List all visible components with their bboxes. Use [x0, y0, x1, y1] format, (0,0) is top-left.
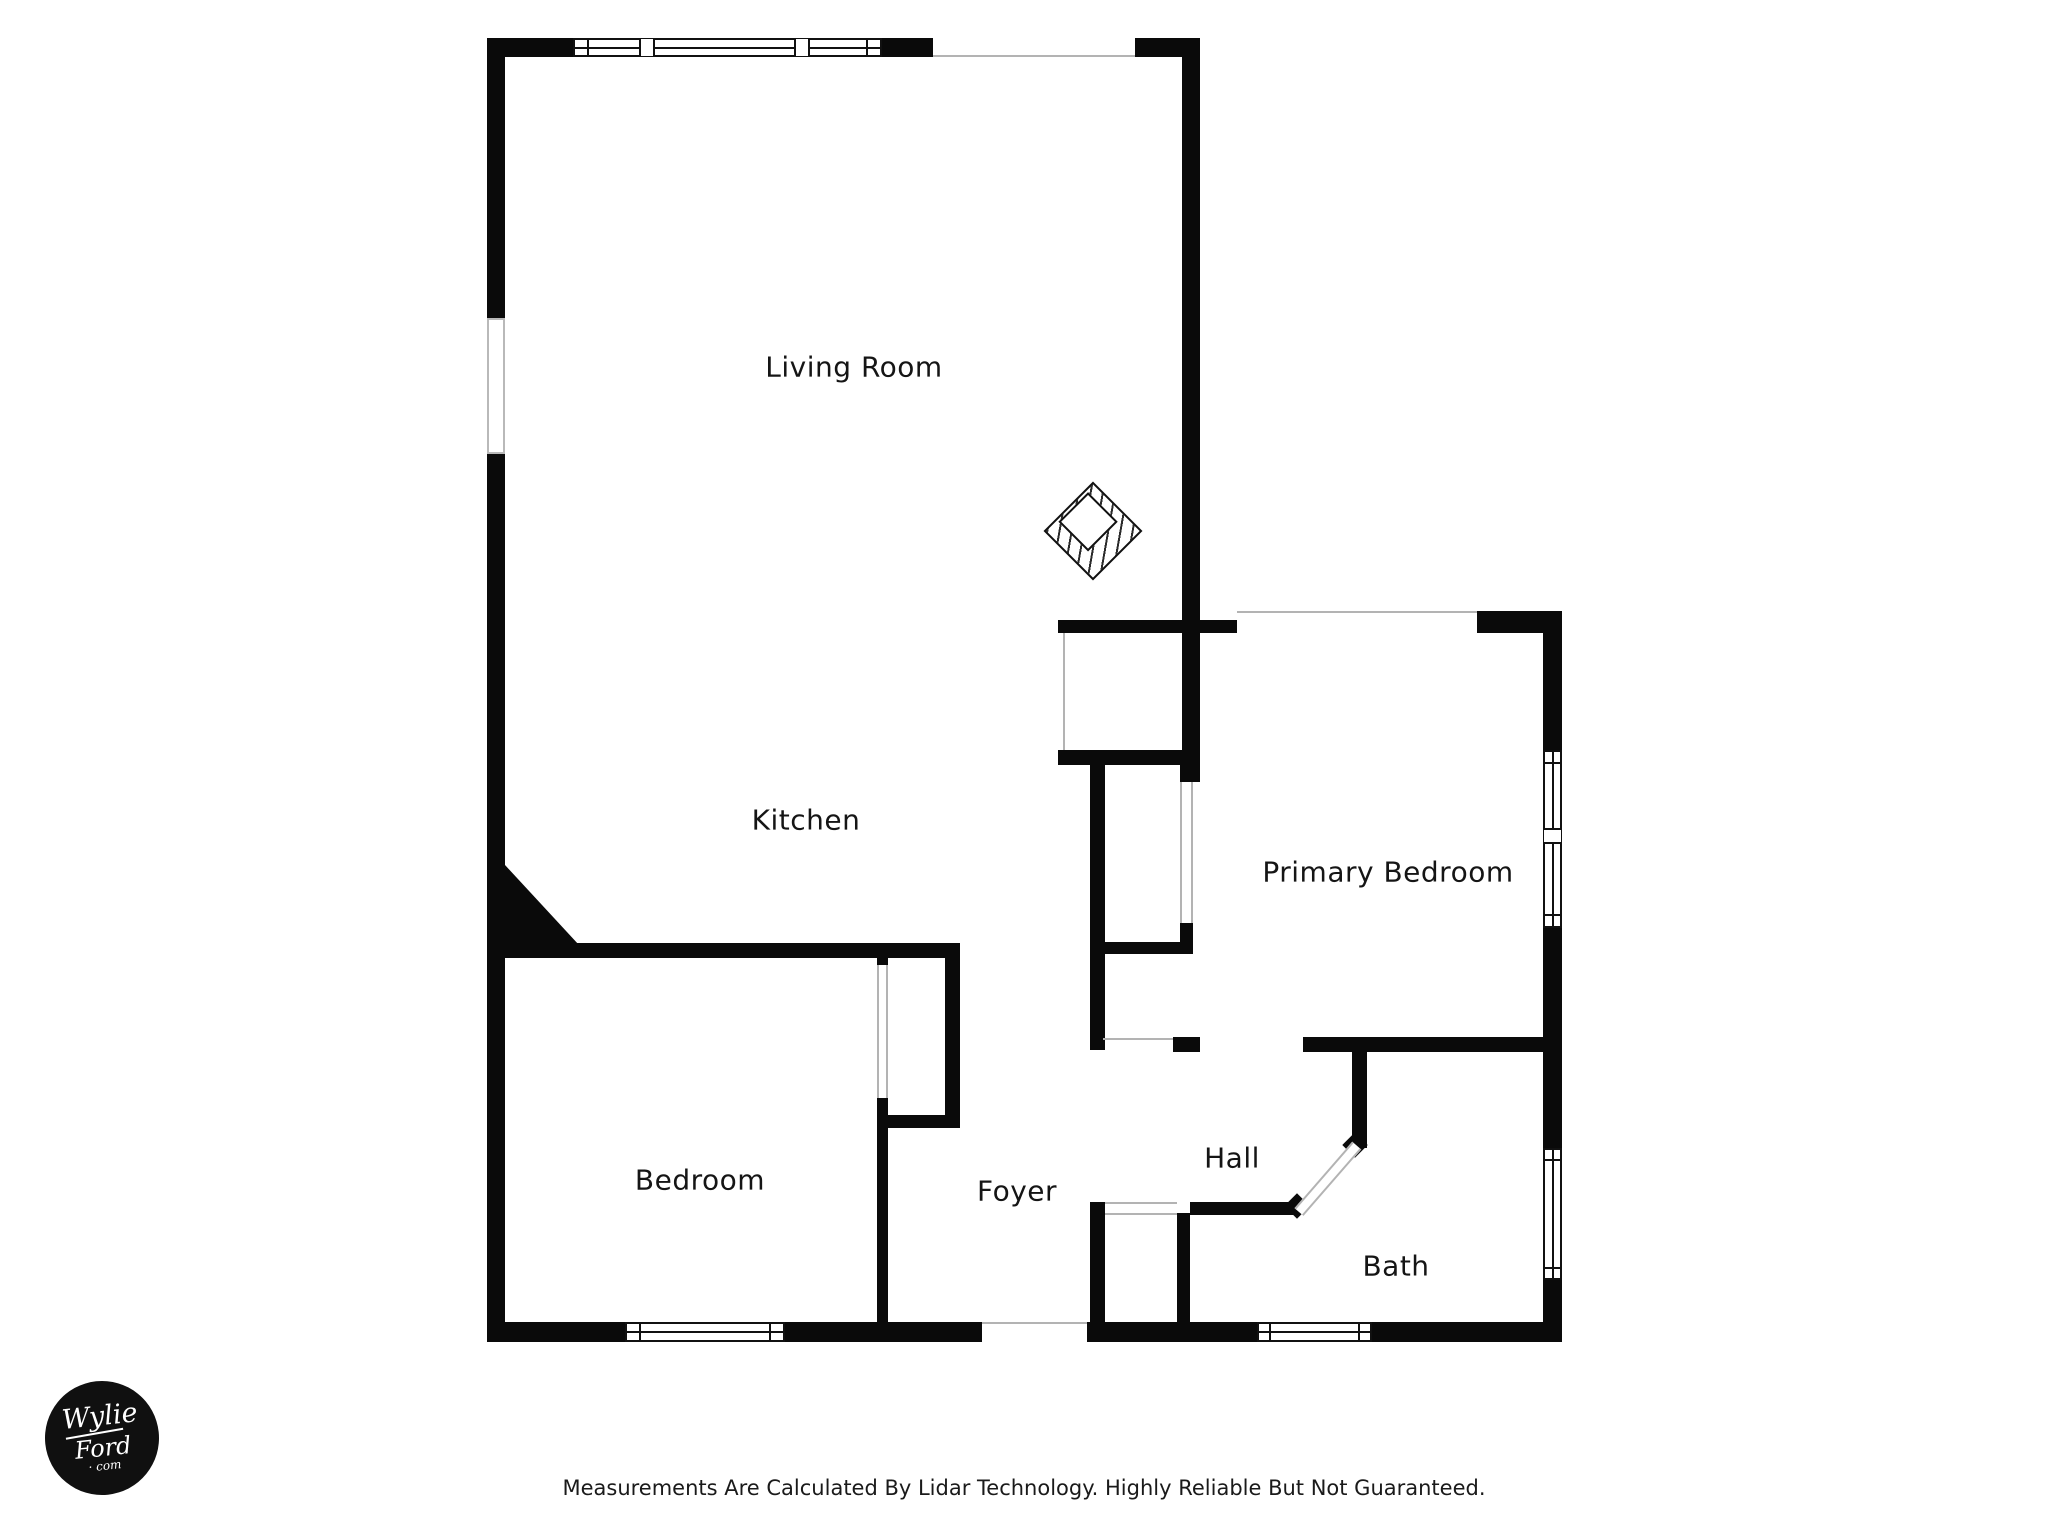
room-label-bath: Bath — [1362, 1250, 1429, 1283]
bath-diagonal-door-opening — [1294, 1142, 1361, 1216]
wall-segment — [877, 1098, 888, 1324]
window-mullion — [1545, 914, 1560, 916]
wall-segment — [1303, 1037, 1543, 1052]
bath-bottom-window — [1257, 1322, 1372, 1342]
fireplace-inner — [1058, 492, 1117, 551]
window-pane-line — [575, 47, 880, 49]
bedroom-closet-door-opening — [877, 965, 888, 1098]
wall-segment — [877, 951, 888, 965]
wall-segment — [1543, 633, 1562, 750]
wall-segment — [1543, 928, 1562, 1148]
window-mullion — [587, 40, 589, 55]
room-label-foyer: Foyer — [977, 1175, 1057, 1208]
wall-segment — [1180, 765, 1193, 782]
wall-segment — [1173, 1037, 1200, 1052]
window-mullion — [794, 39, 810, 56]
wall-segment — [1090, 765, 1105, 1050]
brand-logo-line1: Wylie — [61, 1400, 139, 1434]
wall-segment — [1087, 1322, 1257, 1342]
living-room-top-window — [573, 38, 882, 57]
hall-closet-door-opening — [1105, 1202, 1177, 1215]
room-label-bedroom: Bedroom — [635, 1164, 765, 1197]
wall-segment — [487, 454, 505, 1342]
window-mullion — [639, 39, 655, 56]
window-mullion — [1545, 1159, 1560, 1161]
window-mullion — [1544, 828, 1561, 844]
wall-segment — [1190, 1202, 1298, 1215]
room-label-living-room: Living Room — [765, 351, 942, 384]
wall-segment — [1058, 750, 1193, 765]
window-mullion — [1545, 762, 1560, 764]
wall-segment — [785, 1322, 982, 1342]
angled-wall-corner — [505, 865, 579, 945]
primary-closet-door-opening — [1180, 782, 1193, 923]
wall-segment — [1135, 38, 1200, 57]
room-label-kitchen: Kitchen — [752, 804, 861, 837]
wall-segment — [1102, 942, 1193, 954]
bath-right-window — [1543, 1148, 1562, 1280]
wall-segment — [1477, 611, 1562, 633]
window-mullion — [639, 1324, 641, 1340]
wall-segment — [882, 38, 933, 57]
wall-segment — [487, 38, 505, 318]
wall-segment — [1090, 1202, 1105, 1342]
window-pane-line — [1552, 1150, 1554, 1278]
window-mullion — [1358, 1324, 1360, 1340]
hall-closet-opening-line — [1103, 1038, 1173, 1040]
primary-bedroom-top-opening — [1237, 611, 1477, 613]
wall-segment — [487, 1322, 625, 1342]
wall-segment — [1372, 1322, 1562, 1342]
wall-segment — [505, 943, 960, 958]
wall-segment — [1058, 620, 1237, 633]
brand-logo-line2: Ford — [74, 1434, 133, 1462]
wall-segment — [945, 958, 960, 1115]
window-mullion — [1545, 1267, 1560, 1269]
window-mullion — [1269, 1324, 1271, 1340]
living-room-left-opening — [487, 318, 505, 454]
window-pane-line — [627, 1331, 783, 1333]
floor-plan: Living Room Kitchen Primary Bedroom Bedr… — [0, 0, 2048, 1536]
primary-bedroom-right-windows — [1543, 750, 1562, 928]
disclaimer-text: Measurements Are Calculated By Lidar Tec… — [0, 1476, 2048, 1500]
brand-logo-line3: · com — [88, 1457, 122, 1474]
wall-segment — [1182, 57, 1200, 782]
room-label-primary-bedroom: Primary Bedroom — [1262, 856, 1513, 889]
fireplace-icon — [1044, 482, 1143, 581]
wall-segment — [1177, 1213, 1190, 1323]
closet-opening-line — [1063, 633, 1065, 750]
bedroom-bottom-window — [625, 1322, 785, 1342]
window-mullion — [769, 1324, 771, 1340]
entry-door-opening — [982, 1322, 1087, 1324]
balcony-opening — [933, 55, 1135, 57]
window-mullion — [866, 40, 868, 55]
window-pane-line — [1259, 1331, 1370, 1333]
room-label-hall: Hall — [1204, 1142, 1260, 1175]
wall-segment — [888, 1115, 960, 1128]
